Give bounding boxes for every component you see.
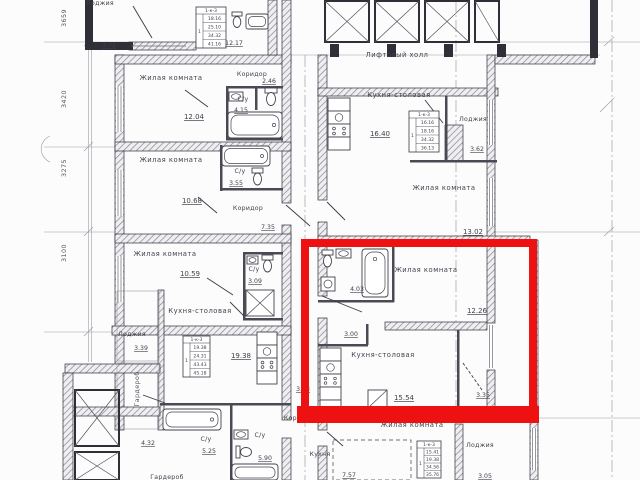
label-living-3: Жилая комната [133,250,196,258]
stamp-top-left: 1-к-3118.1625.1034.3241.16 [196,7,226,48]
stamp-bottom: 1-к-3115.4119.3834.5635.76 [417,441,441,478]
stamp-row-value: 24.31 [193,354,206,360]
area-loggia-left: 3.39 [134,345,148,352]
label-lift-hall: Лифтовый холл [366,51,429,59]
stair-shaft-icon [75,452,119,480]
stamp-header: 1-к-3 [205,8,217,14]
label-bath-4: С/у [201,436,212,443]
stamp-row-value: 36.13 [421,146,434,152]
area-living-1: 12.04 [184,113,205,121]
stamp-row-value: 15.41 [426,450,439,456]
stamp-row-value: 43.43 [193,362,206,368]
label-bath-3: С/у [249,266,260,273]
bathtub-icon [232,464,278,480]
stamp-row-value: 16.16 [421,120,434,126]
washer-icon [321,277,335,291]
area-kitchen-dining-center: 19.38 [231,352,251,360]
label-corridor-2: Коридор [233,205,263,212]
kitchen-counter-icon [257,332,277,384]
area-loggia-right: 3.62 [470,146,484,153]
toilet-icon [232,12,242,28]
stamp-row-value: 45.18 [193,371,206,377]
label-bath-5: С/у [255,432,266,439]
toilet-icon [236,446,252,458]
window-icon [531,428,537,470]
sink-icon [234,430,248,439]
sink-icon [336,249,351,258]
toilet-icon [252,168,263,185]
area-bath-2: 3.55 [229,180,243,187]
bathtub-icon [228,112,282,138]
bathtub-icon [362,249,388,297]
area-living-right: 13.02 [463,228,483,236]
elevator-shaft-icon [375,1,419,42]
label-bath-1: С/у [238,96,249,103]
stamp-row-value: 19.38 [426,457,439,463]
label-loggia-left: Лоджия [118,331,146,338]
stamp-row-value: 34.56 [426,465,439,471]
toilet-icon [262,255,273,272]
label-corridor-1: Коридор [237,71,267,78]
stamp-center: 1-к-3119.3824.3143.4345.18 [183,336,210,377]
dim-3100: 3100 [60,244,68,262]
area-kitchen-bottom: 7.57 [342,472,356,479]
area-bath-4: 5.25 [202,448,216,455]
stamp-row-value: 34.32 [421,137,434,143]
stamp-header: 1-к-3 [191,337,203,343]
floor-plan: 1-к-3118.1625.1034.3241.161-к-3116.1618.… [0,0,640,480]
stamp-side: 1 [198,29,201,35]
label-bath-2: С/у [235,168,246,175]
stamp-side: 1 [419,461,422,467]
area-kitchen-dining-right: 16.40 [370,130,390,138]
stamp-right: 1-к-3116.1618.1634.3236.13 [409,111,439,152]
stamp-row-value: 35.76 [426,472,439,478]
window-icon [488,100,494,145]
label-kitchen-dining-center: Кухня-столовая [168,307,231,315]
area-corridor-hl: 3.00 [344,331,358,338]
elevator-shaft-icon [325,1,369,42]
area-loggia-hl: 3.35 [476,392,490,399]
elevator-shaft-icon [475,1,499,42]
area-living-hl: 12.26 [467,307,488,315]
stamp-row-value: 19.38 [193,345,206,351]
area-loggia-topleft: 3.71 [102,42,116,49]
kitchen-counter-icon [328,98,350,150]
window-icon [116,170,123,216]
area-bath-3: 3.09 [248,278,262,285]
stamp-side: 1 [411,133,414,139]
area-room-top: 12.17 [225,40,243,47]
bathtub-icon [246,14,268,29]
kitchen-counter-icon [320,348,341,412]
label-loggia-right: Лоджия [459,116,487,123]
stamp-header: 1-к-3 [418,112,430,118]
bathtub-icon [222,146,270,166]
window-icon [116,86,123,132]
area-hall-4: 4.32 [141,440,155,447]
stamp-header: 1-к-3 [423,442,435,448]
area-corridor-2: 7.35 [261,224,275,231]
floor-plan-page: 1-к-3118.1625.1034.3241.161-к-3116.1618.… [0,0,640,480]
area-bath-hl: 4.03 [350,286,364,293]
label-living-hl: Жилая комната [394,266,457,274]
area-bath-1: 4.15 [234,107,248,114]
highlight-bottom-bar [297,406,539,423]
label-kitchen-dining-right: Кухня-столовая [367,91,430,99]
label-living-2: Жилая комната [139,156,202,164]
stamp-side: 1 [185,358,188,364]
window-icon [488,178,494,226]
label-wardrobe: Гардероб [133,371,141,406]
shower-icon [246,290,274,316]
dim-3659: 3659 [60,9,68,27]
bathtub-icon [163,409,221,430]
label-kitchen-bottom: Кухня [310,451,331,458]
stamp-row-value: 41.16 [208,42,221,48]
stair-shaft-icon [75,390,119,446]
window-icon [488,325,494,368]
label-living-1: Жилая комната [139,74,202,82]
area-corridor-1: 2.46 [262,78,276,85]
dim-3420: 3420 [60,90,68,108]
elevator-shaft-icon [425,1,469,42]
stamp-row-value: 34.32 [208,33,221,39]
area-living-2: 10.68 [182,197,202,205]
area-loggia-bottom: 3.05 [478,473,492,480]
area-kitchen-dining-hl: 15.54 [394,394,415,402]
label-loggia-bottom: Лоджия [466,442,494,449]
label-loggia-topleft: Лоджия [86,0,114,7]
label-wardrobe-bottom: Гардероб [150,473,184,480]
stamp-row-value: 25.10 [208,25,221,31]
label-kitchen-dining-hl: Кухня-столовая [351,351,414,359]
stamp-row-value: 18.16 [208,16,221,22]
sink-icon [247,256,258,264]
stairs [75,390,119,480]
dim-3275: 3275 [60,159,68,177]
toilet-icon [265,88,277,106]
fridge-icon [368,390,387,408]
stamp-row-value: 18.16 [421,129,434,135]
elevator-shafts [325,1,499,42]
label-living-right: Жилая комната [412,184,475,192]
area-living-3: 10.59 [180,270,200,278]
area-bath-5: 5.90 [258,455,272,462]
